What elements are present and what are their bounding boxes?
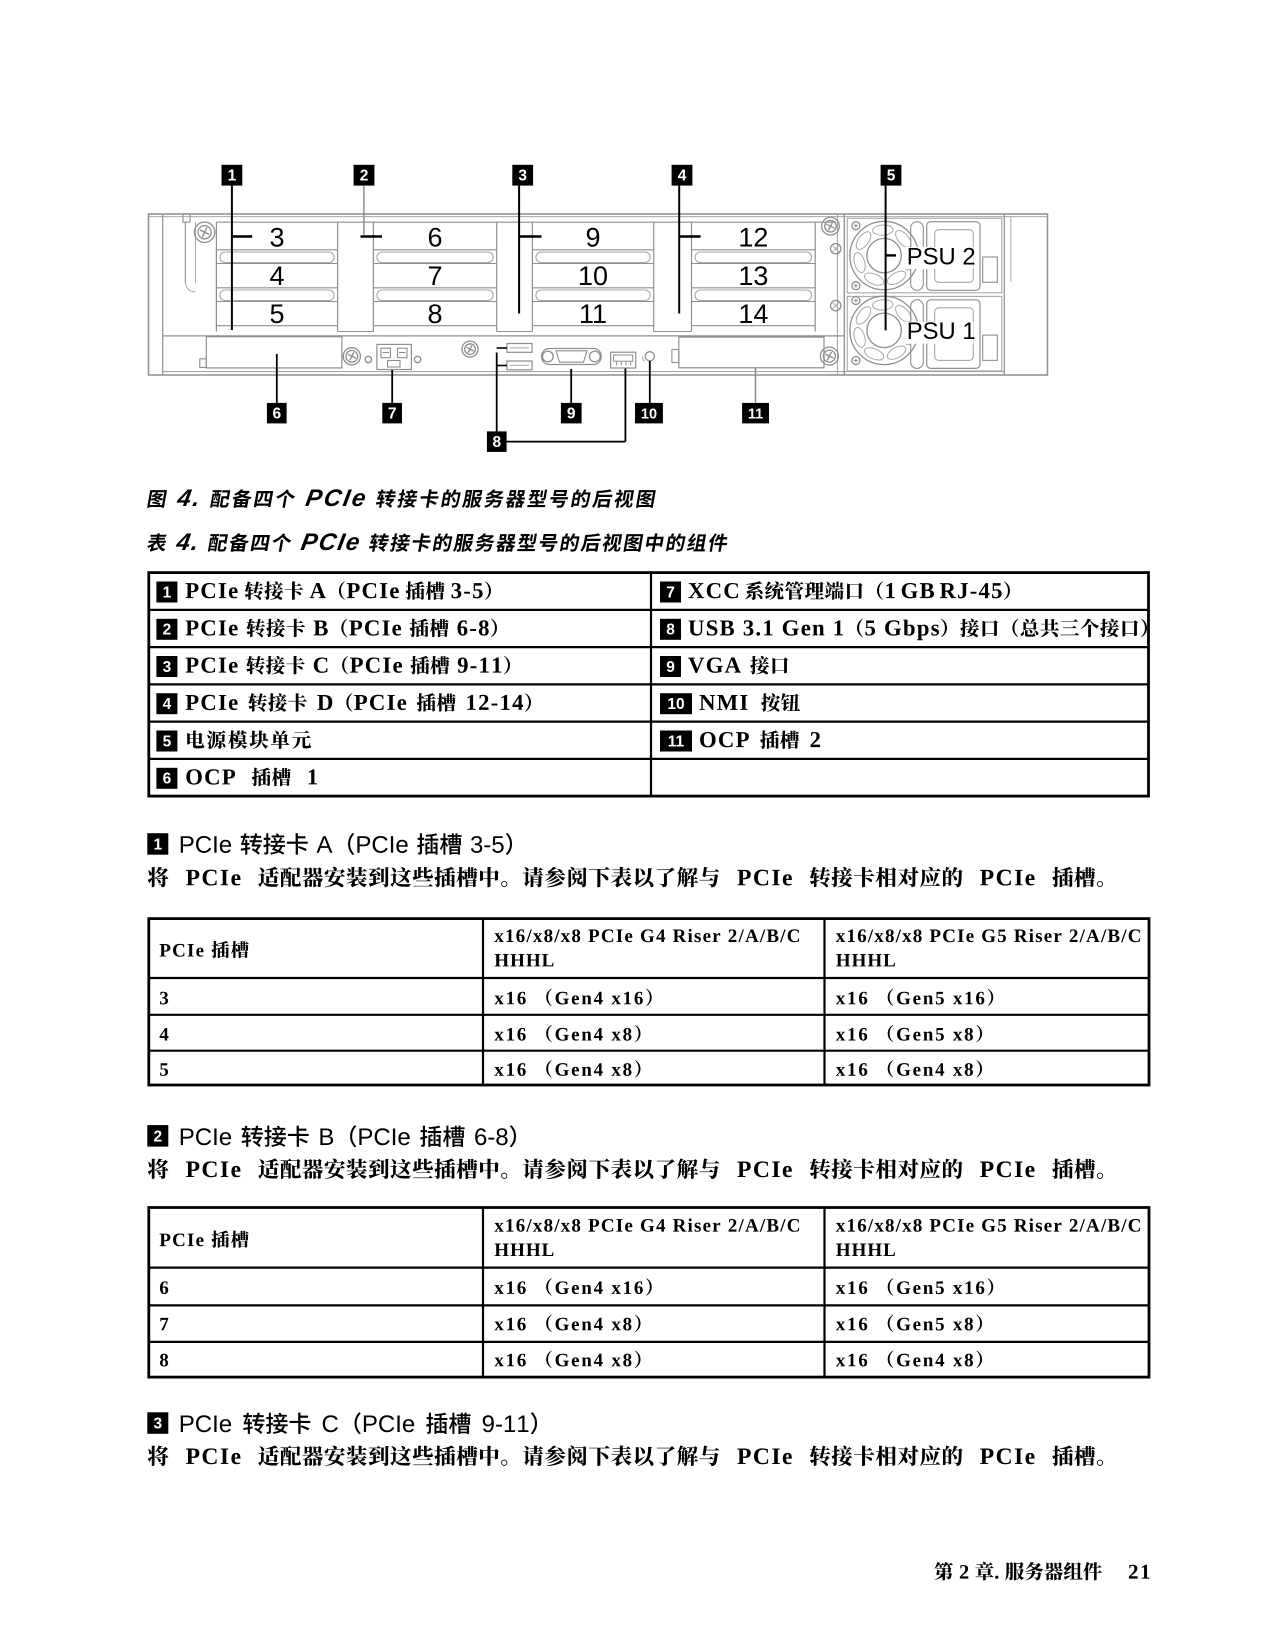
svg-text:4: 4 [678, 168, 687, 185]
svg-text:5: 5 [887, 168, 896, 185]
svg-text:8: 8 [666, 622, 675, 639]
svg-text:9: 9 [666, 659, 675, 676]
svg-text:8: 8 [427, 299, 442, 329]
svg-text:6: 6 [163, 771, 172, 788]
svg-text:3: 3 [269, 222, 284, 252]
svg-text:10: 10 [578, 261, 608, 291]
svg-text:2: 2 [360, 168, 369, 185]
svg-text:2: 2 [153, 1129, 162, 1146]
svg-text:1: 1 [163, 584, 172, 601]
svg-text:8: 8 [492, 434, 501, 451]
svg-text:14: 14 [738, 299, 768, 329]
svg-text:7: 7 [388, 405, 397, 422]
svg-text:9: 9 [585, 222, 600, 252]
svg-text:11: 11 [579, 299, 607, 329]
svg-text:13: 13 [738, 261, 768, 291]
svg-text:7: 7 [666, 584, 675, 601]
svg-text:9: 9 [567, 405, 576, 422]
svg-text:5: 5 [269, 299, 284, 329]
svg-text:6: 6 [427, 222, 442, 252]
svg-text:PSU 2: PSU 2 [907, 243, 976, 270]
svg-text:5: 5 [163, 733, 172, 750]
svg-text:2: 2 [163, 622, 172, 639]
svg-text:3: 3 [163, 659, 172, 676]
svg-text:11: 11 [668, 733, 685, 750]
svg-text:6: 6 [272, 405, 281, 422]
svg-text:10: 10 [641, 406, 657, 422]
svg-text:4: 4 [163, 696, 172, 713]
svg-text:10: 10 [667, 696, 684, 713]
svg-text:1: 1 [153, 837, 162, 854]
svg-text:12: 12 [738, 222, 768, 252]
svg-text:PSU 1: PSU 1 [907, 318, 976, 345]
svg-text:7: 7 [427, 261, 442, 291]
svg-text:4: 4 [269, 261, 284, 291]
svg-text:1: 1 [228, 168, 237, 185]
svg-text:3: 3 [153, 1416, 162, 1433]
svg-text:11: 11 [748, 406, 763, 422]
svg-text:3: 3 [518, 168, 527, 185]
